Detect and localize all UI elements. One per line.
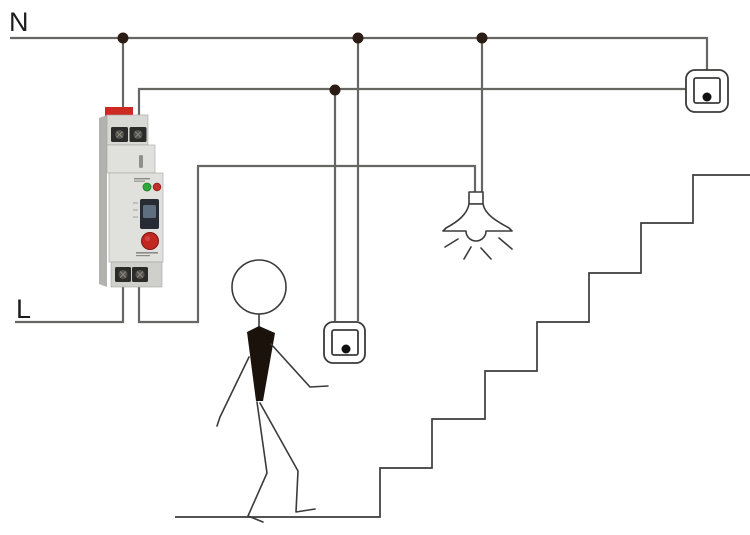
wire-timer-to-buttons xyxy=(139,89,686,130)
pendant-lamp xyxy=(443,192,512,259)
time-adjust-knob xyxy=(142,233,159,250)
line-label: L xyxy=(16,294,31,324)
lamp-shade xyxy=(443,204,512,241)
neutral-label: N xyxy=(9,7,29,37)
lamp-socket xyxy=(469,192,483,204)
led-green xyxy=(143,183,151,191)
device-vent-slot xyxy=(139,155,143,168)
person-head xyxy=(232,260,286,314)
junction-dot xyxy=(118,33,129,44)
push-button-top-right xyxy=(686,70,728,112)
light-ray xyxy=(445,239,458,247)
junction-dot xyxy=(330,85,341,96)
knob-highlight xyxy=(145,236,150,241)
model-print xyxy=(136,252,158,254)
device-step-block xyxy=(107,145,155,173)
line-wire-L xyxy=(15,281,123,322)
person-arm-back xyxy=(217,357,249,426)
mode-slider-knob xyxy=(143,205,156,218)
push-button-dot xyxy=(703,93,712,102)
person-stick-figure xyxy=(217,260,328,522)
person-leg-back xyxy=(248,402,267,522)
wire-timer-to-lamp xyxy=(139,166,475,322)
diagram-svg: N L xyxy=(0,0,750,535)
led-red xyxy=(153,183,161,191)
junction-dot xyxy=(477,33,488,44)
push-button-dot xyxy=(342,345,351,354)
light-ray xyxy=(499,238,512,249)
person-leg-front xyxy=(260,403,315,512)
person-torso xyxy=(247,326,275,401)
device-side xyxy=(99,115,107,287)
light-ray xyxy=(464,247,471,259)
junction-dots xyxy=(118,33,488,96)
push-button-middle xyxy=(324,322,365,363)
person-arm-front xyxy=(271,344,328,387)
wiring-diagram: N L xyxy=(0,0,750,535)
light-ray xyxy=(481,248,491,259)
junction-dot xyxy=(353,33,364,44)
staircase-timer-relay xyxy=(99,107,163,287)
